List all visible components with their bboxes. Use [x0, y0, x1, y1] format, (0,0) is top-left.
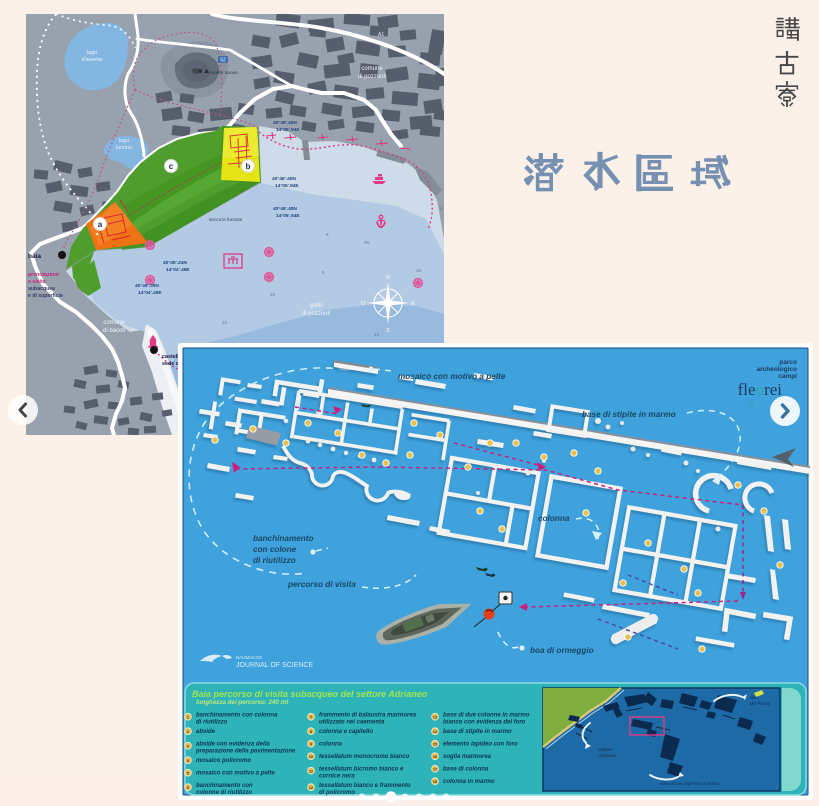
- svg-text:lago: lago: [87, 50, 97, 56]
- svg-text:prenotazioni: prenotazioni: [28, 272, 59, 278]
- svg-text:dei Pisoni: dei Pisoni: [750, 701, 771, 706]
- svg-text:N: N: [386, 275, 390, 281]
- svg-text:40°49'.40N: 40°49'.40N: [273, 206, 297, 212]
- svg-text:10: 10: [309, 754, 314, 759]
- svg-text:c: c: [169, 162, 174, 171]
- svg-text:16: 16: [433, 754, 438, 759]
- svg-text:45: 45: [364, 240, 370, 245]
- svg-text:banchinamento con: banchinamento con: [196, 783, 253, 789]
- svg-text:abside: abside: [196, 729, 216, 735]
- svg-text:34: 34: [374, 332, 380, 337]
- svg-text:baia: baia: [28, 253, 41, 260]
- svg-text:di bacoli: di bacoli: [103, 328, 125, 334]
- svg-text:base di due colonne in marmo: base di due colonne in marmo: [443, 713, 530, 719]
- svg-text:40°49'.40N: 40°49'.40N: [272, 176, 296, 182]
- svg-text:base di stipite in marmo: base di stipite in marmo: [582, 410, 676, 419]
- svg-text:comune: comune: [361, 66, 383, 72]
- svg-text:14°05'.64E: 14°05'.64E: [276, 213, 300, 219]
- svg-text:10: 10: [416, 268, 422, 273]
- svg-text:colonne di riutilizzo: colonne di riutilizzo: [196, 790, 252, 796]
- svg-text:17: 17: [433, 766, 438, 771]
- svg-text:O: O: [361, 301, 365, 307]
- svg-text:utilizzato nei caementa: utilizzato nei caementa: [319, 720, 385, 726]
- svg-text:villa cd con ingresso a protir: villa cd con ingresso a protiro: [660, 781, 720, 786]
- svg-text:parco: parco: [779, 359, 797, 366]
- svg-text:bianco con evidenza del foro: bianco con evidenza del foro: [443, 720, 526, 726]
- svg-text:mosaico con motivo a pelte: mosaico con motivo a pelte: [196, 771, 275, 777]
- svg-text:con colone: con colone: [253, 545, 297, 554]
- svg-text:15: 15: [433, 741, 438, 746]
- svg-text:base di stipite in marmo: base di stipite in marmo: [443, 729, 512, 735]
- svg-text:mosaico policromo: mosaico policromo: [196, 758, 251, 764]
- svg-text:32: 32: [222, 320, 228, 325]
- svg-text:percorso di visita: percorso di visita: [287, 580, 356, 589]
- svg-text:tessellatum monocromo bianco: tessellatum monocromo bianco: [319, 754, 410, 760]
- svg-text:di riutilizzo: di riutilizzo: [253, 556, 296, 565]
- svg-text:A1: A1: [378, 32, 384, 38]
- svg-text:14°04'.40E: 14°04'.40E: [138, 290, 162, 296]
- svg-text:boa di ormeggio: boa di ormeggio: [530, 646, 594, 655]
- svg-text:Baia percorso di visita subacq: Baia percorso di visita subacqueo del se…: [192, 689, 428, 699]
- svg-text:NAUMACOS: NAUMACOS: [236, 655, 262, 660]
- svg-text:base di colonna: base di colonna: [443, 767, 489, 773]
- svg-text:40°49'.24N: 40°49'.24N: [163, 260, 187, 266]
- svg-text:golfo: golfo: [309, 303, 323, 309]
- svg-text:colonna: colonna: [538, 514, 570, 523]
- svg-text:20: 20: [270, 292, 276, 297]
- svg-text:d'averno: d'averno: [82, 57, 103, 63]
- svg-text:40°49'.30N: 40°49'.30N: [135, 283, 159, 289]
- svg-text:preparazione della pavimentazi: preparazione della pavimentazione: [195, 749, 296, 755]
- svg-text:campi: campi: [778, 373, 797, 380]
- svg-text:subacquee: subacquee: [28, 286, 55, 292]
- svg-text:14: 14: [433, 729, 438, 734]
- svg-text:abside con evidenza della: abside con evidenza della: [196, 742, 270, 748]
- svg-text:14°04'.45E: 14°04'.45E: [166, 267, 190, 273]
- svg-text:18: 18: [433, 779, 438, 784]
- svg-text:cornice nera: cornice nera: [319, 774, 355, 780]
- svg-text:14°05'.94E: 14°05'.94E: [276, 127, 300, 133]
- svg-text:soglia marmorea: soglia marmorea: [443, 754, 492, 760]
- svg-text:lucrino: lucrino: [116, 145, 132, 151]
- svg-text:elemento lapideo con foro: elemento lapideo con foro: [443, 742, 518, 748]
- svg-text:JOURNAL OF SCIENCE: JOURNAL OF SCIENCE: [236, 662, 313, 669]
- svg-text:frammento di balaustra marmore: frammento di balaustra marmorea: [319, 713, 417, 719]
- svg-text:secca le fumose: secca le fumose: [209, 217, 243, 222]
- svg-text:colonna e capitello: colonna e capitello: [319, 729, 373, 735]
- svg-text:monte nuovo: monte nuovo: [210, 70, 238, 76]
- svg-text:b: b: [246, 162, 251, 171]
- svg-text:comune: comune: [103, 320, 125, 326]
- svg-text:banchinamento con colonna: banchinamento con colonna: [196, 713, 278, 719]
- svg-text:di pozzuoli: di pozzuoli: [358, 74, 386, 80]
- svg-text:52: 52: [220, 58, 226, 64]
- svg-text:40°49'.40N: 40°49'.40N: [273, 120, 297, 126]
- svg-text:lago: lago: [119, 138, 129, 144]
- svg-text:di pozzuoli: di pozzuoli: [302, 311, 330, 317]
- svg-text:di riutilizzo: di riutilizzo: [196, 720, 228, 726]
- svg-text:archeologico: archeologico: [757, 366, 797, 373]
- svg-text:13: 13: [433, 714, 438, 719]
- svg-text:colonna: colonna: [319, 742, 343, 748]
- svg-text:a: a: [98, 220, 103, 229]
- svg-text:12: 12: [309, 785, 314, 790]
- svg-text:settore: settore: [598, 747, 612, 752]
- svg-text:lunghezza del percorso: 240 mt: lunghezza del percorso: 240 mt: [196, 699, 289, 706]
- svg-text:e visite: e visite: [28, 279, 46, 285]
- svg-text:mosaico con motivo a pelte: mosaico con motivo a pelte: [398, 372, 506, 381]
- svg-text:tessellatum bicromo bianco e: tessellatum bicromo bianco e: [319, 767, 404, 773]
- svg-text:banchinamento: banchinamento: [253, 534, 314, 543]
- svg-text:e di superficie: e di superficie: [28, 293, 63, 299]
- svg-text:o: o: [749, 397, 755, 409]
- svg-text:colonna in marmo: colonna in marmo: [443, 779, 495, 785]
- svg-text:14°05'.94E: 14°05'.94E: [275, 183, 299, 189]
- svg-text:Adrianeo: Adrianeo: [597, 753, 617, 758]
